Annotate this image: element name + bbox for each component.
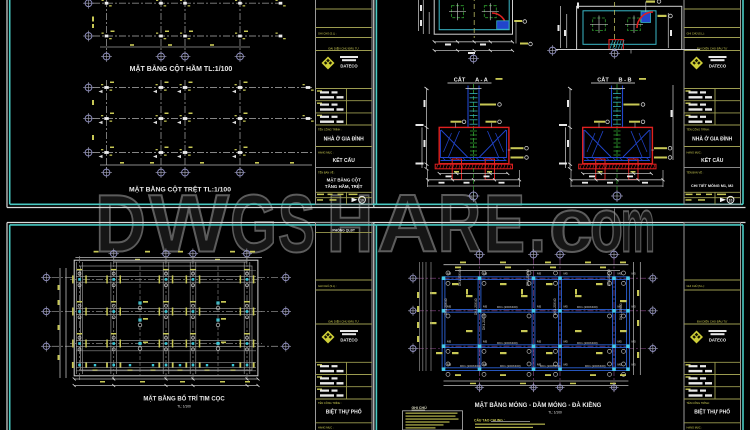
- svg-text:HẠNG MỤC :: HẠNG MỤC :: [318, 151, 334, 155]
- svg-text:.: .: [529, 184, 546, 269]
- svg-text:HẠNG MỤC :: HẠNG MỤC :: [687, 425, 703, 429]
- svg-text:M5: M5: [537, 304, 541, 308]
- svg-text:DK1-20X40: DK1-20X40: [474, 298, 478, 315]
- svg-text:M5: M5: [447, 363, 451, 367]
- svg-text:DATECO: DATECO: [340, 337, 358, 342]
- svg-text:A: A: [377, 179, 438, 270]
- svg-text:M5: M5: [537, 340, 541, 344]
- svg-text:DK1-20X40: DK1-20X40: [619, 303, 623, 320]
- svg-text:TL: 1/100: TL: 1/100: [548, 411, 562, 415]
- svg-text:ĐẠI DIỆN CHỦ ĐẦU TƯ: ĐẠI DIỆN CHỦ ĐẦU TƯ: [697, 318, 728, 323]
- svg-text:CẮT: CẮT: [454, 76, 466, 84]
- svg-text:ĐẠI DIỆN CHỦ ĐẦU TƯ: ĐẠI DIỆN CHỦ ĐẦU TƯ: [697, 45, 728, 50]
- svg-text:TL: 1/100: TL: 1/100: [177, 405, 191, 409]
- svg-text:DATECO: DATECO: [709, 63, 727, 68]
- svg-text:DATECO: DATECO: [340, 63, 358, 68]
- svg-text:DK1 (200X400): DK1 (200X400): [585, 364, 606, 368]
- svg-text:DK1 (200X400): DK1 (200X400): [540, 364, 561, 368]
- svg-text:DATECO: DATECO: [709, 337, 727, 342]
- svg-text:MẶT BẰNG BỐ TRÍ TIM CỌC: MẶT BẰNG BỐ TRÍ TIM CỌC: [143, 395, 225, 403]
- svg-text:CHI TIẾT MÓNG M1, M2: CHI TIẾT MÓNG M1, M2: [691, 183, 733, 188]
- svg-text:S: S: [278, 179, 315, 270]
- svg-text:NHÀ Ở GIA ĐÌNH: NHÀ Ở GIA ĐÌNH: [692, 135, 733, 143]
- svg-text:G: G: [230, 179, 277, 270]
- svg-text:M5: M5: [483, 272, 487, 276]
- svg-text:M5: M5: [537, 272, 541, 276]
- svg-text:DK1 (200X400): DK1 (200X400): [460, 364, 481, 368]
- svg-text:BIỆT THỰ PHỐ: BIỆT THỰ PHỐ: [326, 408, 362, 416]
- svg-text:MẶT BẰNG MÓNG - DẦM MÓNG - ĐÀ: MẶT BẰNG MÓNG - DẦM MÓNG - ĐÀ KIỀNG: [475, 401, 602, 409]
- svg-text:DK1-20X40: DK1-20X40: [444, 298, 448, 315]
- svg-text:DK1-20X40: DK1-20X40: [607, 269, 611, 286]
- svg-text:TẦNG HẦM, TRỆT: TẦNG HẦM, TRỆT: [325, 184, 363, 189]
- svg-text:DK1-20X40: DK1-20X40: [526, 269, 530, 286]
- svg-text:10: 10: [360, 199, 364, 203]
- svg-text:10: 10: [729, 199, 733, 203]
- svg-text:NHÀ Ở GIA ĐÌNH: NHÀ Ở GIA ĐÌNH: [324, 135, 365, 143]
- svg-text:DK1-20X40: DK1-20X40: [482, 313, 486, 330]
- svg-text:M5: M5: [447, 272, 451, 276]
- svg-text:DK1 (200X400): DK1 (200X400): [577, 341, 598, 345]
- svg-text:M5: M5: [483, 363, 487, 367]
- svg-text:E: E: [484, 179, 525, 270]
- svg-text:HẠNG MỤC :: HẠNG MỤC :: [318, 425, 334, 429]
- svg-text:DK1 (200X400): DK1 (200X400): [497, 305, 518, 309]
- svg-text:CẤU TẠO CHUNG :: CẤU TẠO CHUNG :: [474, 418, 505, 422]
- svg-text:DK1 (200X400): DK1 (200X400): [577, 305, 598, 309]
- svg-text:PHÒNG QLĐT: PHÒNG QLĐT: [332, 227, 356, 232]
- svg-text:HẠNG MỤC :: HẠNG MỤC :: [687, 151, 703, 155]
- svg-text:M5: M5: [483, 340, 487, 344]
- svg-text:MẶT BẰNG CỘT: MẶT BẰNG CỘT: [327, 178, 361, 183]
- svg-text:M5: M5: [564, 304, 568, 308]
- svg-text:M5: M5: [483, 304, 487, 308]
- svg-text:M5: M5: [564, 363, 568, 367]
- svg-text:M5: M5: [564, 272, 568, 276]
- svg-text:M5: M5: [447, 340, 451, 344]
- svg-text:KẾT CẤU: KẾT CẤU: [701, 157, 724, 164]
- svg-text:DK1-20X40: DK1-20X40: [553, 298, 557, 315]
- svg-text:GHI CHÚ: GHI CHÚ: [412, 405, 428, 410]
- svg-text:DK1 (200X400): DK1 (200X400): [497, 341, 518, 345]
- svg-text:CẮT: CẮT: [597, 76, 609, 84]
- svg-text:c: c: [549, 184, 593, 269]
- svg-text:M5: M5: [618, 340, 622, 344]
- svg-text:ĐẠI DIỆN CHỦ ĐẦU TƯ: ĐẠI DIỆN CHỦ ĐẦU TƯ: [328, 318, 359, 323]
- svg-text:M5: M5: [564, 340, 568, 344]
- svg-text:DK1 (200X400): DK1 (200X400): [500, 364, 521, 368]
- svg-text:KẾT CẤU: KẾT CẤU: [333, 157, 356, 164]
- svg-text:m: m: [621, 184, 655, 269]
- svg-text:BIỆT THỰ PHỐ: BIỆT THỰ PHỐ: [694, 408, 730, 416]
- svg-text:ĐẠI DIỆN CHỦ ĐẦU TƯ: ĐẠI DIỆN CHỦ ĐẦU TƯ: [328, 45, 359, 50]
- svg-text:MẶT BẰNG CỘT TRỆT TL:1/100: MẶT BẰNG CỘT TRỆT TL:1/100: [129, 185, 231, 194]
- svg-text:DK1-20X40: DK1-20X40: [458, 269, 462, 286]
